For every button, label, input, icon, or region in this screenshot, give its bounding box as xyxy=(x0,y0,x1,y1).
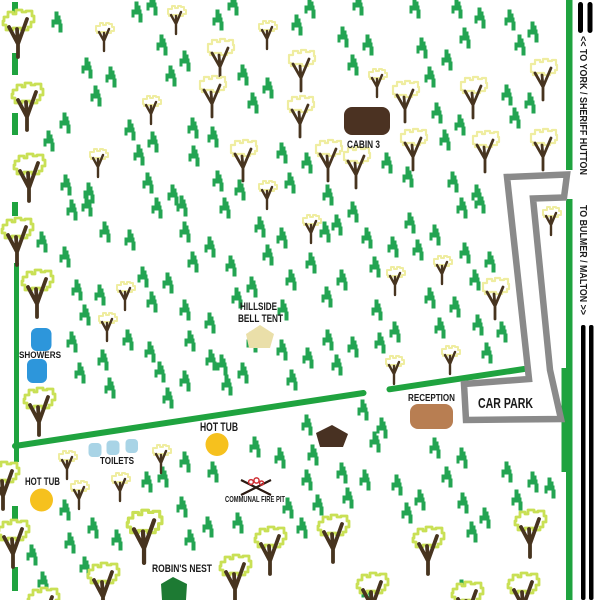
svg-text:BELL TENT: BELL TENT xyxy=(238,313,283,325)
svg-text:HOT TUB: HOT TUB xyxy=(200,420,238,434)
svg-text:CABIN 3: CABIN 3 xyxy=(347,139,380,151)
svg-text:RECEPTION: RECEPTION xyxy=(408,392,455,404)
svg-text:HOT TUB: HOT TUB xyxy=(25,476,60,488)
svg-text:<< TO YORK / SHERIFF HUTTON: << TO YORK / SHERIFF HUTTON xyxy=(577,36,588,175)
svg-text:HILLSIDE: HILLSIDE xyxy=(240,301,277,313)
svg-text:COMMUNAL FIRE PIT: COMMUNAL FIRE PIT xyxy=(225,494,286,504)
svg-text:TO BULMER / MALTON >>: TO BULMER / MALTON >> xyxy=(577,205,588,315)
svg-text:TOILETS: TOILETS xyxy=(100,456,134,467)
svg-text:ROBIN'S NEST: ROBIN'S NEST xyxy=(152,563,212,575)
svg-text:CAR PARK: CAR PARK xyxy=(478,395,533,412)
